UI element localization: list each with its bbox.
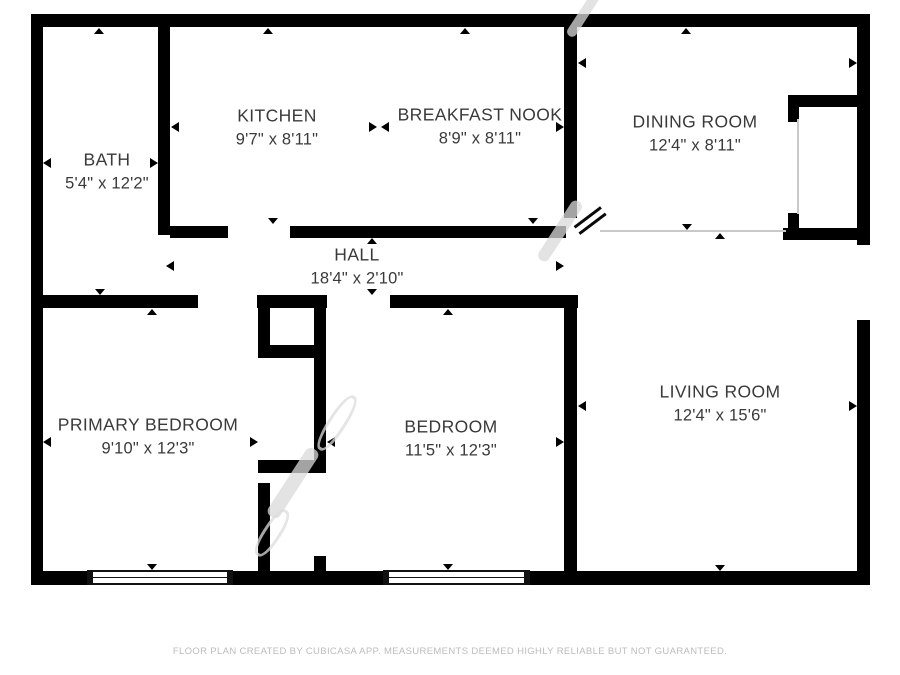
wall-segment (857, 14, 870, 245)
room-name: BREAKFAST NOOK (398, 103, 563, 127)
room-label-breakfast-nook: BREAKFAST NOOK 8'9" x 8'11" (398, 103, 563, 152)
door-window-marker (166, 261, 174, 271)
wall-segment (564, 27, 577, 218)
door-window-marker (150, 158, 158, 168)
room-dimensions: 12'4" x 15'6" (659, 404, 780, 429)
door-window-marker (578, 401, 586, 411)
window-end-cap (524, 572, 528, 583)
door-window-marker (443, 564, 453, 570)
wall-segment (43, 295, 198, 308)
room-dimensions: 11'5" x 12'3" (404, 439, 497, 464)
door-window-marker (460, 28, 470, 34)
room-dimensions: 12'4" x 8'11" (633, 134, 758, 159)
door-window-marker (681, 28, 691, 34)
door-window-marker (381, 122, 389, 132)
door-window-marker (556, 437, 564, 447)
room-name: HALL (310, 243, 403, 267)
wall-segment (857, 320, 870, 585)
wall-segment (170, 226, 228, 238)
door-window-marker (556, 261, 564, 271)
door-window-marker (43, 158, 51, 168)
door-window-marker (369, 122, 377, 132)
door-window-marker (849, 401, 857, 411)
wall-segment (314, 556, 326, 571)
dining-living-separation-line (600, 230, 786, 232)
door-window-marker (147, 309, 157, 315)
door-window-marker (715, 565, 725, 571)
room-label-primary-bedroom: PRIMARY BEDROOM 9'10" x 12'3" (58, 413, 238, 462)
door-window-marker (263, 28, 273, 34)
floor-plan: BATH 5'4" x 12'2" KITCHEN 9'7" x 8'11" B… (0, 0, 900, 675)
door-window-marker (147, 564, 157, 570)
room-label-living-room: LIVING ROOM 12'4" x 15'6" (659, 380, 780, 429)
door-window-marker (715, 233, 725, 239)
door-window-marker (268, 218, 278, 224)
room-name: BEDROOM (404, 415, 497, 439)
door-window-marker (250, 437, 258, 447)
window-pane-line (385, 577, 528, 579)
room-label-dining-room: DINING ROOM 12'4" x 8'11" (633, 110, 758, 159)
wall-segment (31, 14, 870, 27)
room-name: LIVING ROOM (659, 380, 780, 404)
room-name: BATH (65, 148, 149, 172)
wall-segment (788, 95, 799, 122)
wall-segment (31, 14, 43, 585)
window-pane-line (89, 577, 231, 579)
room-dimensions: 8'9" x 8'11" (398, 127, 563, 152)
watermark-mark (265, 446, 320, 521)
wall-segment (158, 27, 170, 235)
wall-segment (290, 226, 566, 238)
door-window-marker (43, 437, 51, 447)
room-name: PRIMARY BEDROOM (58, 413, 238, 437)
room-name: KITCHEN (236, 104, 319, 128)
door-window-marker (443, 309, 453, 315)
primary-bedroom-window (87, 570, 233, 585)
room-dimensions: 9'10" x 12'3" (58, 437, 238, 462)
door-window-marker (528, 218, 538, 224)
room-name: DINING ROOM (633, 110, 758, 134)
bedroom-window (383, 570, 530, 585)
door-window-marker (94, 28, 104, 34)
dining-closet-door-line (797, 119, 799, 214)
room-label-bedroom: BEDROOM 11'5" x 12'3" (404, 415, 497, 464)
wall-segment (257, 295, 327, 308)
room-dimensions: 9'7" x 8'11" (236, 128, 319, 153)
wall-segment (783, 228, 857, 240)
room-label-hall: HALL 18'4" x 2'10" (310, 243, 403, 292)
door-window-marker (849, 58, 857, 68)
wall-segment (390, 295, 578, 308)
room-label-kitchen: KITCHEN 9'7" x 8'11" (236, 104, 319, 153)
door-window-marker (578, 58, 586, 68)
window-end-cap (227, 572, 231, 583)
door-window-marker (95, 289, 105, 295)
room-dimensions: 18'4" x 2'10" (310, 267, 403, 292)
wall-segment (564, 295, 577, 571)
room-label-bath: BATH 5'4" x 12'2" (65, 148, 149, 197)
disclaimer-text: FLOOR PLAN CREATED BY CUBICASA APP. MEAS… (0, 646, 900, 657)
room-dimensions: 5'4" x 12'2" (65, 172, 149, 197)
door-window-marker (171, 122, 179, 132)
door-window-marker (682, 224, 692, 230)
